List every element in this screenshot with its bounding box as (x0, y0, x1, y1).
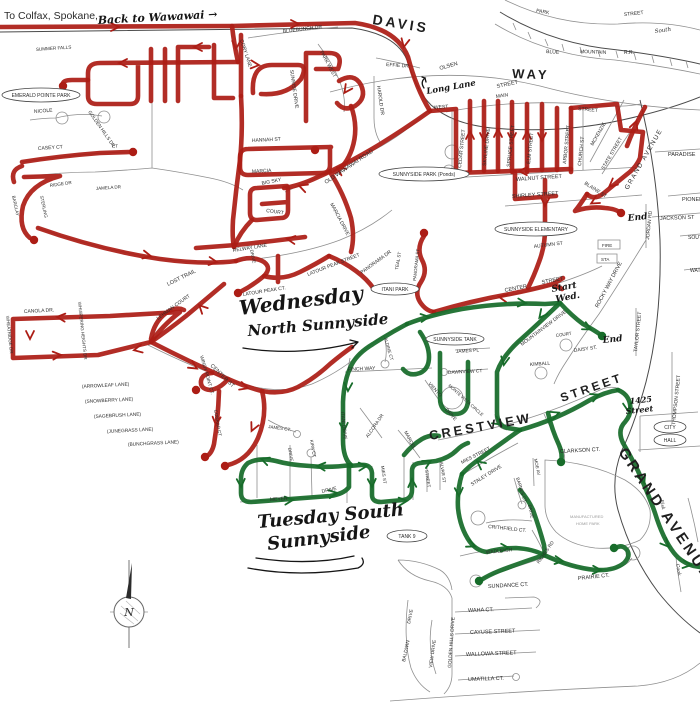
street-label: STATE STREET (601, 136, 624, 171)
street-label: BARCLAY (11, 195, 20, 216)
street-label: ALDINE CT (383, 337, 394, 361)
street-label: WALNUT STREET (516, 174, 563, 183)
map-canvas: EMERALD POINTE PARKSUNNYSIDE PARK (Ponds… (0, 0, 700, 703)
corner-note: To Colfax, Spokane, (4, 10, 98, 22)
street-label: (SAGEBRUSH LANE) (94, 412, 142, 420)
route-green-endpoint-dot (557, 458, 565, 466)
street-label: UMATILLA CT. (468, 676, 505, 683)
place-label: ITANI PARK (381, 287, 409, 293)
compass-north-label: N (123, 606, 134, 619)
handwritten-annotation: Long Lane (425, 78, 477, 97)
route-red-path (417, 236, 434, 312)
road-segment (419, 332, 507, 430)
place-label: TANK 9 (398, 534, 415, 540)
road-segment (390, 560, 700, 701)
street-label: SOUTH (688, 235, 700, 241)
culdesac-circle (535, 367, 547, 379)
street-label: WAHA CT. (468, 607, 494, 614)
street-label: STREET (424, 469, 431, 488)
route-green-endpoint-dot (610, 544, 618, 552)
place-label: SUNNYSIDE TANK (433, 337, 477, 343)
street-label: HOME PARK (576, 521, 600, 526)
street-label: WATER (690, 268, 700, 274)
place-label: EMERALD POINTE PARK (12, 93, 71, 99)
route-red-path (233, 96, 242, 247)
street-label: PIONEER (682, 197, 700, 203)
culdesac-circle (294, 431, 301, 438)
route-red-arrow-icon (248, 422, 259, 433)
handwritten-annotation: End (626, 212, 648, 224)
route-green-path (481, 555, 544, 580)
street-label: MAIN (495, 92, 509, 100)
route-red-endpoint-dot (420, 229, 428, 237)
street-label: FINCH WAY (348, 366, 376, 373)
culdesac-circle (98, 111, 110, 123)
street-label: WAY (512, 66, 550, 82)
route-red-path (151, 49, 165, 101)
street-label: TAYLOR STREET (633, 311, 643, 352)
street-label: HANNAH ST (252, 136, 281, 144)
street-label: JAMES CT. (268, 424, 291, 432)
route-green-path (403, 332, 429, 374)
handwritten-annotation: Street (625, 403, 654, 416)
route-green-path (462, 430, 520, 474)
street-label: KIRK CT (309, 439, 317, 458)
street-label: CHURCH ST (577, 136, 586, 166)
street-label: THOMPSON STREET (671, 375, 682, 425)
street-label: PANORAMA ST (412, 248, 420, 281)
street-label: MIES ST (380, 465, 387, 484)
street-label: MEYER (270, 496, 288, 503)
street-label: RIDGE DR (49, 180, 72, 188)
route-red-endpoint-dot (221, 462, 229, 470)
street-label: ALCORA DR (365, 413, 386, 440)
street-label: (BUNCHGRASS LANE) (128, 439, 180, 448)
street-label: SUNDANCE CT. (488, 582, 529, 590)
street-label: CASEY CT (38, 144, 63, 152)
street-label: CRITHFIELD CT. (488, 524, 527, 534)
street-label: PARADISE (668, 152, 696, 158)
route-green-path (560, 303, 601, 335)
road-segment (646, 149, 700, 270)
handwriting-stroke (248, 558, 363, 573)
place-label: HALL (664, 438, 677, 444)
route-red-endpoint-dot (311, 146, 319, 154)
street-label: FIRE (602, 243, 612, 248)
street-label: HAROLD DR (375, 85, 385, 115)
route-green-endpoint-dot (475, 577, 483, 585)
street-label: NICOLE (34, 108, 54, 115)
street-label: DAISY ST. (573, 345, 597, 354)
route-red-path (13, 312, 180, 358)
street-label: SUMMER FALLS (36, 45, 72, 52)
street-label: SPRUCE STREET (506, 125, 516, 167)
street-label: COURT (555, 331, 572, 338)
street-label: DAWNVIEW CT (448, 368, 483, 376)
route-green-path (407, 303, 560, 324)
street-label: MOE AV (533, 458, 541, 476)
street-label: TEAL ST (394, 251, 402, 270)
street-label: COURT (266, 208, 284, 216)
handwriting-stroke (243, 340, 358, 351)
street-label: STREET (496, 79, 519, 90)
street-label: BALDWIN (401, 639, 412, 662)
street-label: PANORAMA DR (360, 249, 393, 276)
street-label: CAYUSE STREET (470, 628, 516, 636)
route-red-endpoint-dot (129, 148, 137, 156)
route-red-path (337, 77, 363, 108)
culdesac-circle (513, 674, 520, 681)
street-label: South (654, 27, 672, 35)
street-label: KIMBALL (530, 361, 551, 368)
street-label: VIEW DRIVE (428, 639, 438, 668)
street-label: (ARROWLEAF LANE) (82, 382, 130, 390)
street-label: AUTUMN ST (534, 240, 564, 250)
route-red-endpoint-dot (30, 236, 38, 244)
street-label: CLARKSON CT. (560, 447, 601, 455)
street-label: CANOLA DR. (24, 307, 55, 315)
street-label: OLSEN (439, 61, 459, 72)
street-label: STREET (578, 106, 598, 114)
street-label: DRIVE (287, 447, 294, 461)
route-red-path (22, 152, 130, 162)
street-label: EFFIE DR (386, 62, 410, 70)
street-label: JAMES PL (456, 347, 480, 355)
route-red-endpoint-dot (192, 386, 200, 394)
handwritten-annotation: End (601, 334, 623, 346)
culdesac-circle (471, 511, 485, 525)
street-label: Cook (674, 563, 682, 576)
culdesac-circle (560, 339, 572, 351)
street-label: JACKSON ST (660, 215, 695, 222)
street-label: MARCIA (252, 168, 272, 175)
street-label: WEST (434, 104, 449, 111)
handwriting-stroke (256, 556, 354, 562)
culdesac-circle (56, 112, 68, 124)
street-label: WALLOWA STREET (466, 650, 517, 658)
route-red-endpoint-dot (617, 209, 625, 217)
street-label: PRAIRIE CT. (578, 573, 611, 582)
street-label: (SNOWBERRY LANE) (85, 396, 134, 405)
route-green-path (440, 353, 468, 414)
street-label: LOST TRAIL (166, 269, 197, 288)
route-red-path (228, 391, 264, 465)
street-label: STERLING (39, 195, 49, 219)
street-label: WADLEIGH (486, 547, 513, 556)
street-label: MOUNTAIN (580, 49, 607, 56)
street-label: R.R. (624, 50, 634, 56)
route-red-endpoint-dot (201, 453, 209, 461)
street-label: STREET (624, 10, 644, 18)
street-label: JAMELA DR (96, 184, 122, 191)
place-label: SUNNYSIDE ELEMENTARY (504, 227, 569, 233)
street-label: DRIVE (406, 609, 415, 625)
street-label: CEDAR STREET (457, 129, 467, 168)
road-segment (425, 348, 490, 410)
street-label: PARK (536, 8, 551, 16)
street-label: CT (112, 144, 119, 149)
route-red-path (178, 45, 233, 101)
street-label: WHISPERING HEIGHTS DR (77, 302, 88, 361)
street-label: BARNES CT (515, 477, 528, 503)
street-label: GOLDEN HILLS DRIVE (447, 617, 457, 668)
route-red-arrow-icon (26, 331, 34, 339)
route-red-path (306, 53, 340, 121)
place-label: SUNNYSIDE PARK (Ponds) (393, 172, 456, 178)
street-label: STA (601, 257, 609, 262)
street-label: MANUFACTURED (570, 514, 603, 519)
route-red-path (430, 101, 571, 172)
street-label: BLUE (546, 49, 560, 56)
road-segment (505, 0, 700, 30)
street-label: (JUNEGRASS LANE) (107, 427, 154, 435)
map-viewport: EMERALD POINTE PARKSUNNYSIDE PARK (Ponds… (0, 0, 700, 703)
